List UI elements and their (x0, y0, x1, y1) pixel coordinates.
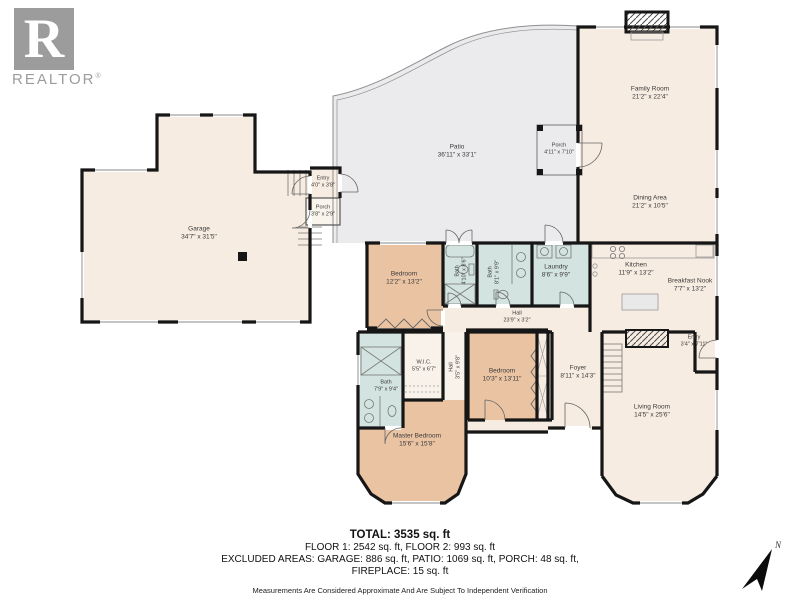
floor-plan-page: N R REALTOR® Garage 34'7" x 31'5" Entry … (0, 0, 800, 600)
total-area: TOTAL: 3535 sq. ft (0, 529, 800, 541)
excluded-areas-line2: FIREPLACE: 15 sq. ft (0, 566, 800, 577)
realtor-logo-letter: R (24, 14, 64, 64)
floor-plan-drawing: N (0, 0, 800, 600)
room-fills (82, 25, 717, 503)
realtor-logo-text: REALTOR® (12, 71, 102, 88)
fireplace-hatch (626, 330, 668, 347)
realtor-logo: R REALTOR® (12, 8, 102, 88)
realtor-logo-mark: R (14, 8, 74, 70)
floor-areas: FLOOR 1: 2542 sq. ft, FLOOR 2: 993 sq. f… (0, 542, 800, 553)
excluded-areas-line1: EXCLUDED AREAS: GARAGE: 886 sq. ft, PATI… (0, 554, 800, 565)
area-summary: TOTAL: 3535 sq. ft FLOOR 1: 2542 sq. ft,… (0, 529, 800, 595)
disclaimer: Measurements Are Considered Approximate … (0, 586, 800, 595)
